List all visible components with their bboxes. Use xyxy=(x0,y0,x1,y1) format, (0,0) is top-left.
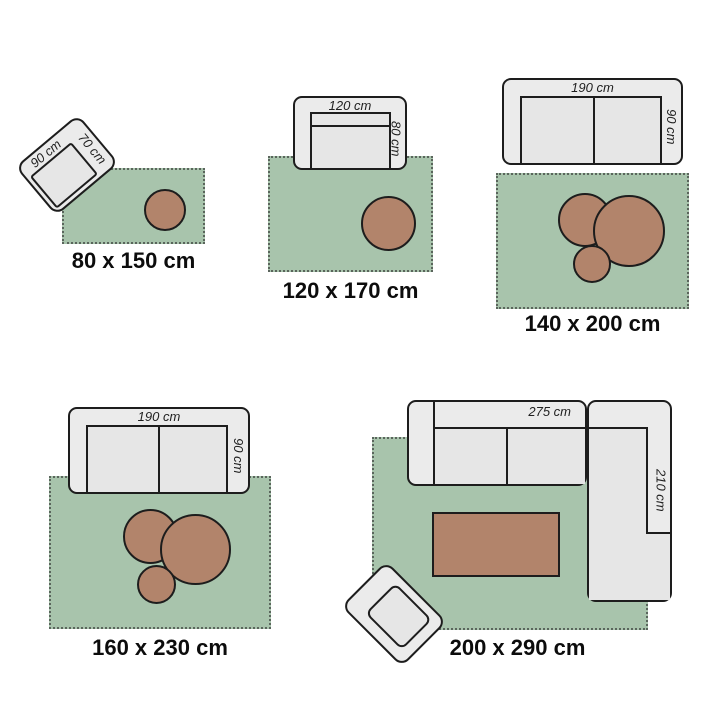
sofa-seat xyxy=(520,96,662,163)
armrest-line xyxy=(433,402,435,484)
coffee-table xyxy=(432,512,560,577)
rug-size-label: 200 x 290 cm xyxy=(405,635,630,661)
sofa-width-dimension: 190 cm xyxy=(504,80,681,95)
backrest-line xyxy=(589,427,648,429)
rug-size-label: 80 x 150 cm xyxy=(62,248,205,274)
pouf xyxy=(361,196,416,251)
sofa-depth-dimension: 210 cm xyxy=(653,448,669,532)
sofa-width-dimension: 275 cm xyxy=(528,404,571,419)
corner-sofa-seat xyxy=(435,429,585,484)
sofa-width-dimension: 190 cm xyxy=(70,409,248,424)
seat-divider-line xyxy=(593,96,595,163)
two-seat-sofa: 190 cm 90 cm xyxy=(68,407,250,494)
rug-160x230 xyxy=(49,476,271,629)
chaise-inner-horizontal-line xyxy=(646,532,670,534)
two-seat-sofa: 190 cm 90 cm xyxy=(502,78,683,165)
rug-size-label: 120 x 170 cm xyxy=(268,278,433,304)
loveseat-width-dimension: 120 cm xyxy=(295,98,405,112)
rug-120x170 xyxy=(268,156,433,272)
pouf xyxy=(144,189,186,231)
chaise-seat-lower xyxy=(589,534,670,600)
loveseat-depth-dimension: 80 cm xyxy=(388,114,404,164)
sofa-seat xyxy=(86,425,228,492)
loveseat: 120 cm 80 cm xyxy=(293,96,407,170)
backrest-line xyxy=(435,427,585,429)
rug-size-label: 160 x 230 cm xyxy=(49,635,271,661)
rug-size-guide: 90 cm 70 cm 80 x 150 cm 120 cm 80 cm 120… xyxy=(0,0,720,720)
backrest-line xyxy=(310,125,391,127)
sofa-depth-dimension: 90 cm xyxy=(663,98,680,155)
corner-sofa-main: 275 cm xyxy=(407,400,587,486)
seat-divider-line xyxy=(158,425,160,492)
pouf-small xyxy=(573,245,611,283)
loveseat-seat xyxy=(310,112,391,168)
sofa-depth-dimension: 90 cm xyxy=(230,427,247,484)
chaise-inner-vertical-line xyxy=(646,427,648,534)
rug-size-label: 140 x 200 cm xyxy=(496,311,689,337)
corner-sofa-chaise: 210 cm xyxy=(587,400,672,602)
seat-divider-line xyxy=(506,427,508,484)
pouf-small xyxy=(137,565,176,604)
rug-140x200 xyxy=(496,173,689,309)
